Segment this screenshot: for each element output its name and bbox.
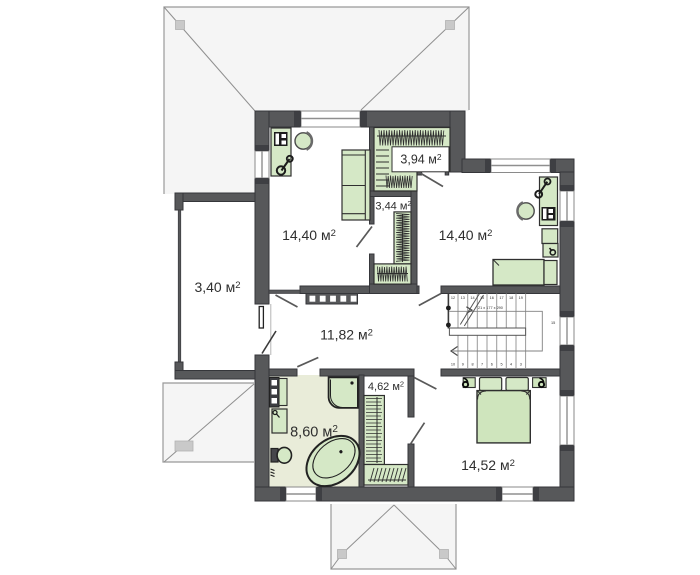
svg-text:16: 16	[490, 296, 494, 300]
svg-text:3: 3	[520, 363, 522, 367]
svg-text:18: 18	[509, 296, 513, 300]
svg-text:9: 9	[462, 363, 464, 367]
svg-text:3,44 м2: 3,44 м2	[375, 199, 411, 213]
svg-text:11,82 м2: 11,82 м2	[320, 326, 373, 342]
svg-text:21 x 177 x 290: 21 x 177 x 290	[478, 306, 503, 310]
svg-text:3,40 м2: 3,40 м2	[194, 279, 240, 295]
svg-text:10: 10	[451, 363, 455, 367]
svg-text:14: 14	[470, 296, 474, 300]
svg-text:8: 8	[471, 363, 473, 367]
svg-text:4: 4	[510, 363, 512, 367]
svg-text:14,40 м2: 14,40 м2	[282, 227, 336, 243]
svg-text:15: 15	[551, 321, 555, 325]
svg-text:3,94 м2: 3,94 м2	[400, 152, 441, 167]
svg-text:17: 17	[499, 296, 503, 300]
svg-text:15: 15	[480, 296, 484, 300]
svg-text:8,60 м2: 8,60 м2	[290, 424, 338, 441]
svg-text:13: 13	[461, 296, 465, 300]
svg-text:14,40 м2: 14,40 м2	[439, 227, 493, 243]
svg-text:19: 19	[519, 296, 523, 300]
svg-text:14,52 м2: 14,52 м2	[461, 457, 515, 473]
svg-text:5: 5	[500, 363, 502, 367]
svg-text:4,62 м2: 4,62 м2	[368, 380, 404, 394]
svg-text:6: 6	[491, 363, 493, 367]
svg-text:12: 12	[451, 296, 455, 300]
svg-text:7: 7	[481, 363, 483, 367]
